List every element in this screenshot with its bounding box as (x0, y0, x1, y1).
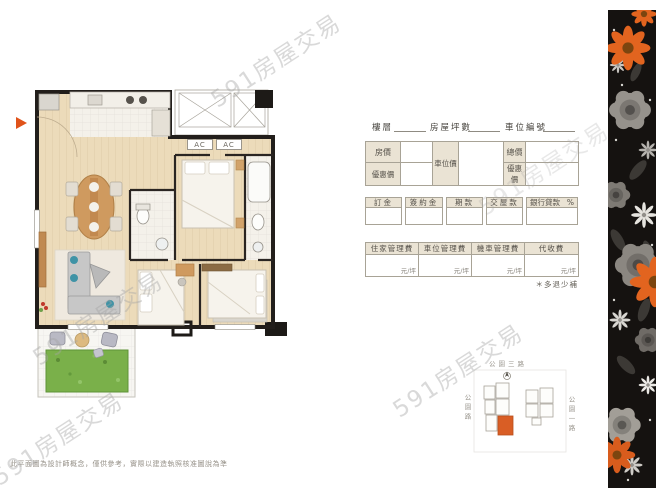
fee-unit: 元/坪 (472, 255, 525, 277)
floral-strip-image (608, 10, 656, 488)
payment-label: 訂金 (366, 198, 401, 208)
parking-price-label: 車位價 (433, 142, 459, 186)
percent-sign: % (567, 198, 574, 207)
highlighted-unit (498, 416, 513, 435)
payment-box-bank-loan: 銀行貸款 % (526, 197, 578, 225)
house-discount-label: 優惠價 (366, 163, 401, 186)
field-blank-area (468, 121, 500, 132)
site-plan-image (460, 362, 580, 458)
payment-box-handover: 交屋款 (486, 197, 523, 225)
ac-unit-label: AC (187, 139, 213, 150)
fee-unit: 元/坪 (525, 255, 579, 277)
field-label-floor: 樓層 (372, 121, 393, 133)
field-blank-parking-no (543, 121, 575, 132)
payment-label: 簽約金 (406, 198, 442, 208)
payment-label: 銀行貸款 (530, 197, 560, 208)
parking-price-value (459, 142, 504, 186)
payment-box-installment: 期款 (446, 197, 483, 225)
ac-unit-label: AC (216, 139, 242, 150)
total-price-label: 總價 (504, 142, 526, 163)
brochure-page: AC AC 591房屋交易 591房屋交易 591房屋交易 591房屋交易 59… (0, 0, 660, 495)
refund-note: ＊多退少補 (480, 279, 578, 290)
payment-box-contract: 簽約金 (405, 197, 443, 225)
fee-table: 住家管理費 車位管理費 機車管理費 代收費 元/坪 元/坪 元/坪 元/坪 (365, 242, 579, 277)
field-blank-floor (394, 121, 426, 132)
fee-header-collection: 代收費 (525, 243, 579, 255)
payment-label: 交屋款 (487, 198, 522, 208)
payment-label: 期款 (447, 198, 482, 208)
floor-plan-image (10, 82, 310, 412)
road-label-left: 公園路 (462, 394, 472, 423)
price-table: 房價 車位價 總價 優惠價 優惠價 (365, 141, 579, 186)
fee-unit: 元/坪 (366, 255, 419, 277)
road-label-right: 公園一路 (566, 396, 576, 434)
fee-header-home: 住家管理費 (366, 243, 419, 255)
house-discount-value (401, 163, 433, 186)
north-arrow-icon (504, 372, 511, 380)
entrance-arrow-icon (16, 117, 27, 129)
payment-box-deposit: 訂金 (365, 197, 402, 225)
fee-unit: 元/坪 (419, 255, 472, 277)
total-discount-label: 優惠價 (504, 163, 526, 186)
house-price-label: 房價 (366, 142, 401, 163)
disclaimer-text: 此平面圖為設計師概念，僅供參考，實際以建造執照核准圖說為準 (10, 459, 228, 469)
road-label-top: 公園三路 (470, 358, 546, 368)
total-price-value (526, 142, 579, 163)
fee-header-parking: 車位管理費 (419, 243, 472, 255)
total-discount-value (526, 163, 579, 186)
house-price-value (401, 142, 433, 163)
fee-header-scooter: 機車管理費 (472, 243, 525, 255)
field-label-parking-no: 車位編號 (505, 121, 547, 133)
field-label-area: 房屋坪數 (430, 121, 472, 133)
